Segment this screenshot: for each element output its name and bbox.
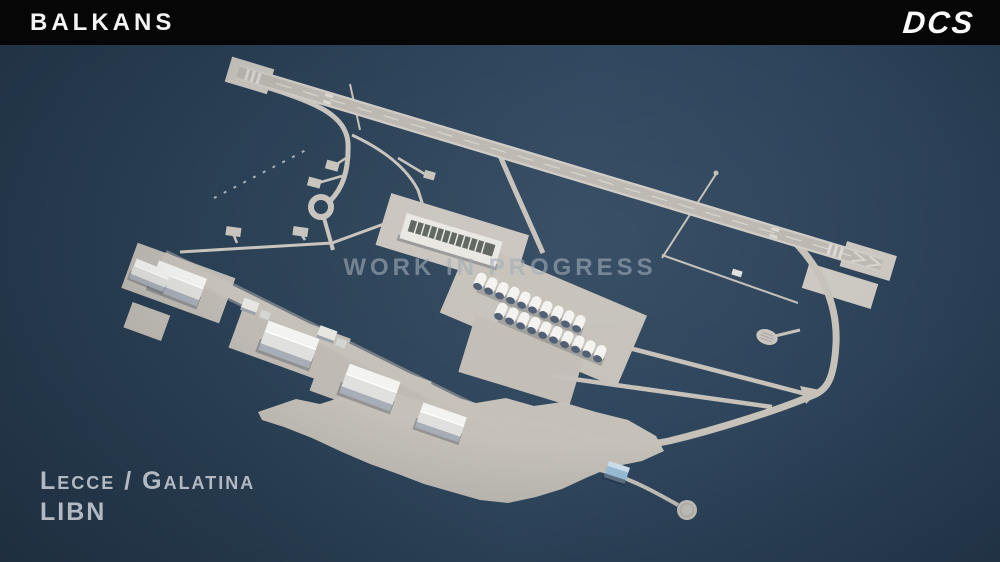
dcs-logo: DCS <box>901 5 976 41</box>
promo-frame: WORK IN PROGRESS BALKANS DCS Lecce / Gal… <box>0 0 1000 562</box>
airfield-label: Lecce / Galatina LIBN <box>40 466 255 528</box>
approach-lights <box>214 148 310 198</box>
airfield-icao: LIBN <box>40 497 255 528</box>
header-bar: BALKANS DCS <box>0 0 1000 45</box>
wip-watermark: WORK IN PROGRESS <box>0 254 1000 282</box>
map-title: BALKANS <box>30 9 175 37</box>
helipad-circle <box>677 500 697 520</box>
airfield-name: Lecce / Galatina <box>40 466 255 497</box>
teardrop-turnaround <box>311 197 331 217</box>
calibration-pad <box>754 326 780 348</box>
